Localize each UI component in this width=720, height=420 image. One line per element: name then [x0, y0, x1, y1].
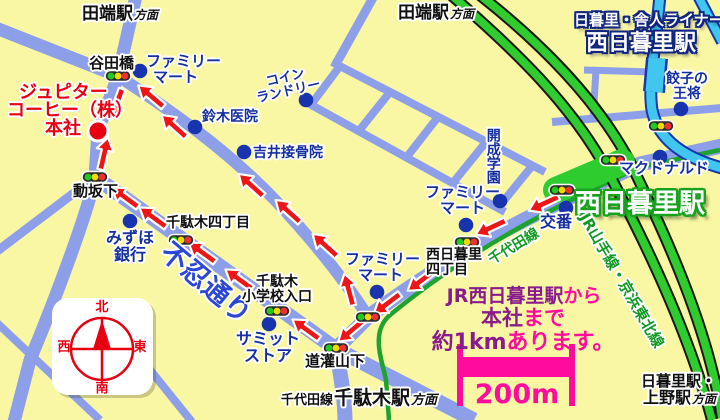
nishi-nippori-4chome-label: 西日暮里 四丁目 [426, 248, 482, 277]
summit-store-label: サミット ストア [236, 331, 300, 365]
toneri-liner-label: 日暮里・舎人ライナー [574, 13, 720, 29]
direction-nippori-ueno: 日暮里駅・ 上野駅 方面 [641, 374, 716, 407]
compass-north-label: 北 [95, 301, 108, 315]
scale-label: 200m [475, 379, 560, 410]
direction-tabata-west: 田端駅方面 [82, 6, 158, 24]
familymart-east-dot [459, 218, 474, 233]
familymart-north-label: ファミリー マート [146, 54, 221, 86]
mcdonalds-label: マクドナルド [619, 161, 709, 177]
traffic-light-icon [105, 71, 131, 82]
familymart-east-label: ファミリー マート [425, 185, 500, 217]
dokanyamashita-label: 道灌山下 [305, 354, 365, 370]
dosakashita-label: 動坂下 [73, 184, 118, 200]
gyoza-ohsho-dot [674, 102, 689, 117]
yoshii-clinic-label: 吉井接骨院 [253, 146, 323, 161]
sendagi-4chome-label: 千駄木四丁目 [166, 216, 250, 231]
sendagi-elementary-label: 千駄木 小学校入口 [242, 275, 312, 304]
compass-south-label: 南 [95, 382, 108, 396]
direction-tabata-north: 田端駅方面 [398, 5, 474, 23]
traffic-light-icon [648, 121, 674, 132]
distance-note-line3: 約1kmあります。 [432, 324, 615, 356]
traffic-light-icon [454, 237, 480, 248]
familymart-mid-label: ファミリー マート [345, 252, 420, 284]
nishi-nippori-station-label-top: 西日暮里駅 [586, 32, 696, 55]
company-hq-dot [88, 121, 108, 141]
mizuho-bank-dot [123, 214, 138, 229]
compass-east-label: 東 [133, 341, 146, 355]
direction-sendagi-station: 千代田線 千駄木駅 方面 [281, 389, 437, 409]
traffic-light-icon [355, 312, 381, 323]
suzuki-clinic-dot [188, 120, 203, 135]
traffic-light-icon [264, 306, 290, 317]
mizuho-bank-label: みずほ 銀行 [106, 230, 154, 264]
familymart-mid-dot [370, 285, 385, 300]
traffic-light-icon [549, 185, 575, 196]
suzuki-clinic-label: 鈴木医院 [202, 110, 258, 125]
koban-label: 交番 [540, 214, 572, 231]
company-name-line3: 本社 [45, 120, 81, 139]
yatabashi-label: 谷田橋 [89, 56, 134, 72]
gyoza-ohsho-label: 餃子の 王将 [658, 72, 716, 101]
nishi-nippori-station-label-main: 西日暮里駅 [575, 191, 705, 218]
route-map: 田端駅方面 田端駅方面 日暮里・舎人ライナー 西日暮里駅 餃子の 王将 マクドナ… [0, 0, 720, 420]
traffic-light-icon [82, 172, 108, 183]
yoshii-clinic-dot [237, 145, 252, 160]
compass-west-label: 西 [57, 341, 70, 355]
